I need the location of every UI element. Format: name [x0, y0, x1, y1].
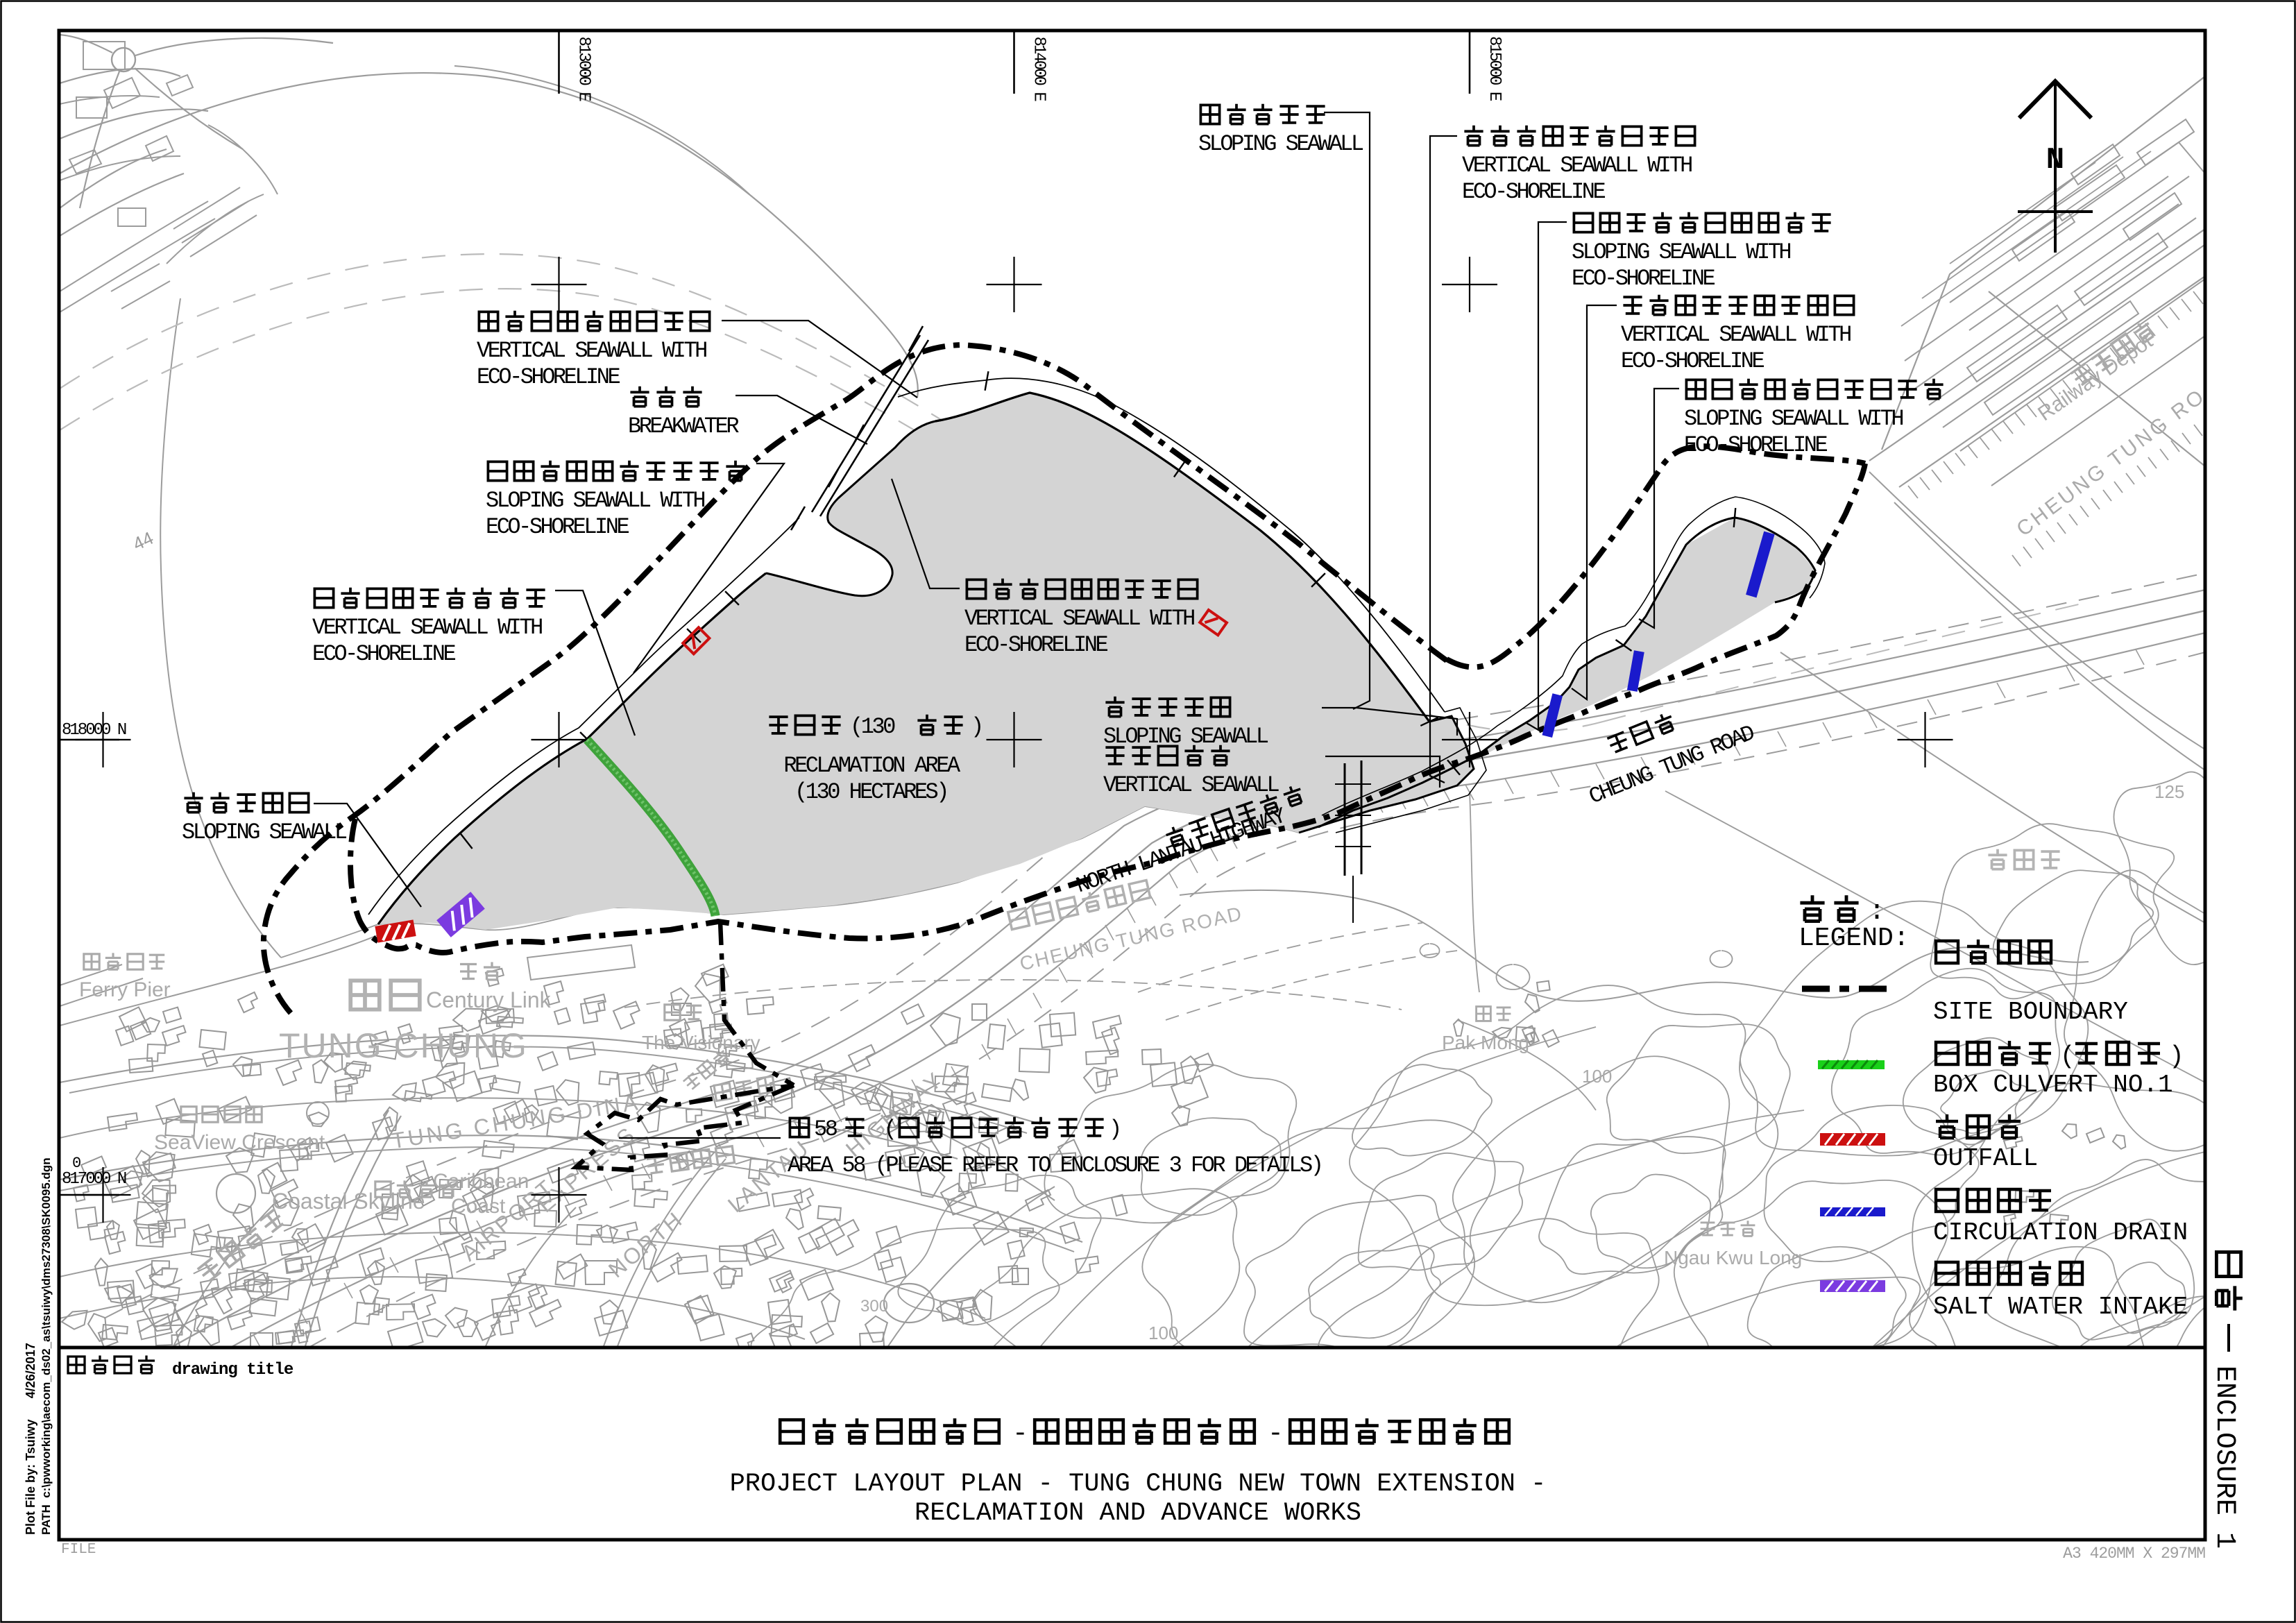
- svg-text:818000 N: 818000 N: [62, 721, 126, 740]
- svg-text:815000 E: 815000 E: [1485, 36, 1504, 101]
- svg-text:OUTFALL: OUTFALL: [1933, 1144, 2038, 1173]
- svg-text:SLOPING SEAWALL: SLOPING SEAWALL: [182, 819, 347, 845]
- svg-text:-: -: [1012, 1419, 1026, 1449]
- svg-text:300: 300: [860, 1297, 888, 1316]
- svg-text:-: -: [1268, 1419, 1281, 1449]
- svg-text:VERTICAL SEAWALL WITH: VERTICAL SEAWALL WITH: [477, 338, 706, 364]
- svg-text:RECLAMATION AREA: RECLAMATION AREA: [783, 753, 961, 779]
- svg-text:SALT WATER INTAKE: SALT WATER INTAKE: [1933, 1293, 2188, 1321]
- svg-text:Plot File by: Tsuiwy 4/26: Plot File by: Tsuiwy 4/26/2017: [24, 1343, 37, 1535]
- svg-text:TUNG CHUNG: TUNG CHUNG: [279, 1026, 528, 1065]
- svg-text:Caribbean: Caribbean: [433, 1170, 529, 1193]
- svg-text:SeaView Crescent: SeaView Crescent: [154, 1131, 325, 1154]
- svg-text:ECO-SHORELINE: ECO-SHORELINE: [1621, 348, 1764, 374]
- svg-text:SLOPING SEAWALL: SLOPING SEAWALL: [1103, 724, 1268, 749]
- svg-text:(130: (130: [850, 714, 895, 740]
- svg-text:): ): [1109, 1116, 1120, 1142]
- svg-text:Ngau Kwu Long: Ngau Kwu Long: [1664, 1247, 1802, 1268]
- svg-text:(: (: [2060, 1042, 2073, 1071]
- svg-text:SLOPING SEAWALL: SLOPING SEAWALL: [1198, 131, 1363, 157]
- svg-text:BREAKWATER: BREAKWATER: [628, 414, 739, 439]
- svg-text:VERTICAL SEAWALL WITH: VERTICAL SEAWALL WITH: [312, 615, 542, 640]
- svg-text:N: N: [2046, 143, 2064, 178]
- svg-text:AREA 58 (PLEASE REFER TO ENCLO: AREA 58 (PLEASE REFER TO ENCLOSURE 3 FOR…: [788, 1153, 1321, 1178]
- svg-text:0: 0: [72, 1155, 81, 1172]
- svg-text:FILE: FILE: [61, 1542, 96, 1558]
- svg-text:ENCLOSURE 1: ENCLOSURE 1: [2209, 1366, 2240, 1549]
- svg-text:): ): [971, 714, 982, 740]
- svg-text:VERTICAL SEAWALL WITH: VERTICAL SEAWALL WITH: [964, 606, 1194, 631]
- svg-text:100: 100: [1582, 1066, 1612, 1087]
- svg-text:125: 125: [2154, 781, 2184, 802]
- svg-text:ECO-SHORELINE: ECO-SHORELINE: [477, 364, 620, 390]
- svg-text:ECO-SHORELINE: ECO-SHORELINE: [1572, 266, 1715, 291]
- svg-text:PATH c:\pwworking\aecom_ds02_: PATH c:\pwworking\aecom_ds02_as\tsuiwy\d…: [40, 1157, 53, 1535]
- svg-text:LEGEND:: LEGEND:: [1798, 924, 1910, 953]
- svg-text:drawing title: drawing title: [172, 1361, 294, 1379]
- svg-text:VERTICAL SEAWALL WITH: VERTICAL SEAWALL WITH: [1462, 153, 1692, 178]
- svg-text:VERTICAL SEAWALL WITH: VERTICAL SEAWALL WITH: [1621, 322, 1851, 348]
- svg-text:CIRCULATION DRAIN: CIRCULATION DRAIN: [1933, 1218, 2188, 1247]
- svg-text:PROJECT LAYOUT PLAN - TUNG CHU: PROJECT LAYOUT PLAN - TUNG CHUNG NEW TOW…: [730, 1470, 1547, 1499]
- svg-text:ECO-SHORELINE: ECO-SHORELINE: [964, 632, 1107, 658]
- svg-text:ECO-SHORELINE: ECO-SHORELINE: [486, 514, 629, 540]
- svg-text:SLOPING SEAWALL WITH: SLOPING SEAWALL WITH: [1572, 239, 1790, 265]
- svg-text:A3 420MM X 297MM: A3 420MM X 297MM: [2063, 1545, 2205, 1563]
- svg-text:SLOPING SEAWALL WITH: SLOPING SEAWALL WITH: [1684, 406, 1903, 432]
- svg-text:VERTICAL SEAWALL: VERTICAL SEAWALL: [1103, 772, 1279, 798]
- svg-text:): ): [2169, 1042, 2182, 1071]
- svg-text:817000 N: 817000 N: [62, 1170, 126, 1189]
- svg-text:58: 58: [814, 1116, 837, 1142]
- svg-text:RECLAMATION AND ADVANCE WORKS: RECLAMATION AND ADVANCE WORKS: [915, 1499, 1361, 1528]
- svg-text:BOX CULVERT NO.1: BOX CULVERT NO.1: [1933, 1071, 2173, 1099]
- svg-text:Ferry Pier: Ferry Pier: [79, 978, 171, 1001]
- svg-text:ECO-SHORELINE: ECO-SHORELINE: [1462, 179, 1605, 205]
- svg-text:ECO-SHORELINE: ECO-SHORELINE: [1684, 432, 1827, 458]
- svg-text:100: 100: [1148, 1323, 1178, 1343]
- svg-text:SLOPING SEAWALL WITH: SLOPING SEAWALL WITH: [486, 488, 704, 513]
- svg-text:SITE BOUNDARY: SITE BOUNDARY: [1933, 998, 2128, 1026]
- svg-text:814000 E: 814000 E: [1030, 37, 1048, 102]
- svg-text:(: (: [873, 1116, 894, 1142]
- svg-text:Pak Mong: Pak Mong: [1442, 1032, 1529, 1053]
- svg-text:813000 E: 813000 E: [575, 37, 593, 102]
- svg-text:ECO-SHORELINE: ECO-SHORELINE: [312, 641, 455, 667]
- svg-text:Century Link: Century Link: [426, 987, 552, 1012]
- svg-text:(130 HECTARES): (130 HECTARES): [794, 779, 947, 805]
